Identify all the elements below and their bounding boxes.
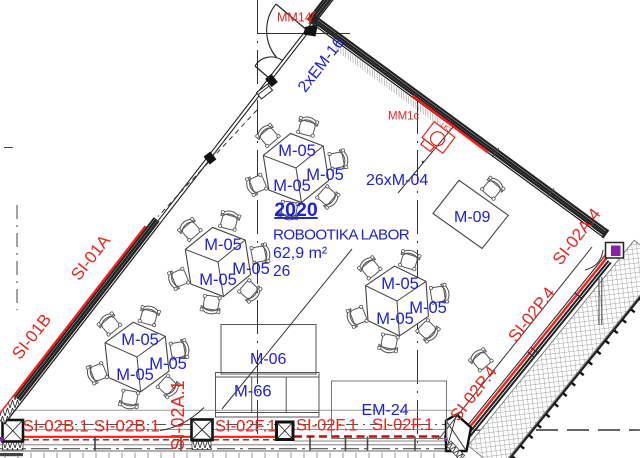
svg-text:SI-02B.1: SI-02B.1 [23, 417, 89, 436]
svg-text:SI-02A.1: SI-02A.1 [168, 380, 188, 450]
svg-text:MM14: MM14 [277, 11, 312, 25]
svg-text:M-05: M-05 [381, 275, 419, 293]
svg-text:26xM-04: 26xM-04 [366, 172, 428, 189]
svg-text:ROBOOTIKA LABOR: ROBOOTIKA LABOR [273, 227, 410, 244]
svg-text:M-05: M-05 [273, 177, 311, 195]
svg-text:SI-02F.1: SI-02F.1 [215, 418, 276, 436]
svg-text:M-05: M-05 [199, 271, 237, 289]
svg-text:M-05: M-05 [409, 299, 447, 317]
svg-text:26: 26 [273, 263, 290, 280]
svg-text:M-09: M-09 [454, 209, 491, 226]
svg-text:M-05: M-05 [376, 310, 414, 328]
svg-text:M-05: M-05 [121, 331, 159, 349]
svg-text:SI-02F.1: SI-02F.1 [296, 417, 357, 435]
svg-text:M-05: M-05 [232, 260, 270, 278]
svg-text:M-05: M-05 [116, 366, 154, 384]
svg-text:M-05: M-05 [149, 355, 187, 373]
svg-text:M-06: M-06 [250, 351, 287, 368]
svg-text:62,9 m²: 62,9 m² [273, 245, 328, 262]
svg-text:M-05: M-05 [306, 166, 344, 184]
svg-text:MM1c: MM1c [388, 111, 420, 123]
svg-text:SI-02F.1: SI-02F.1 [372, 416, 433, 434]
svg-text:M-05: M-05 [204, 236, 242, 254]
svg-text:M-05: M-05 [278, 142, 316, 160]
svg-text:M-66: M-66 [234, 383, 272, 401]
svg-text:2020: 2020 [274, 199, 318, 221]
svg-text:SI-02B.1: SI-02B.1 [94, 417, 160, 436]
